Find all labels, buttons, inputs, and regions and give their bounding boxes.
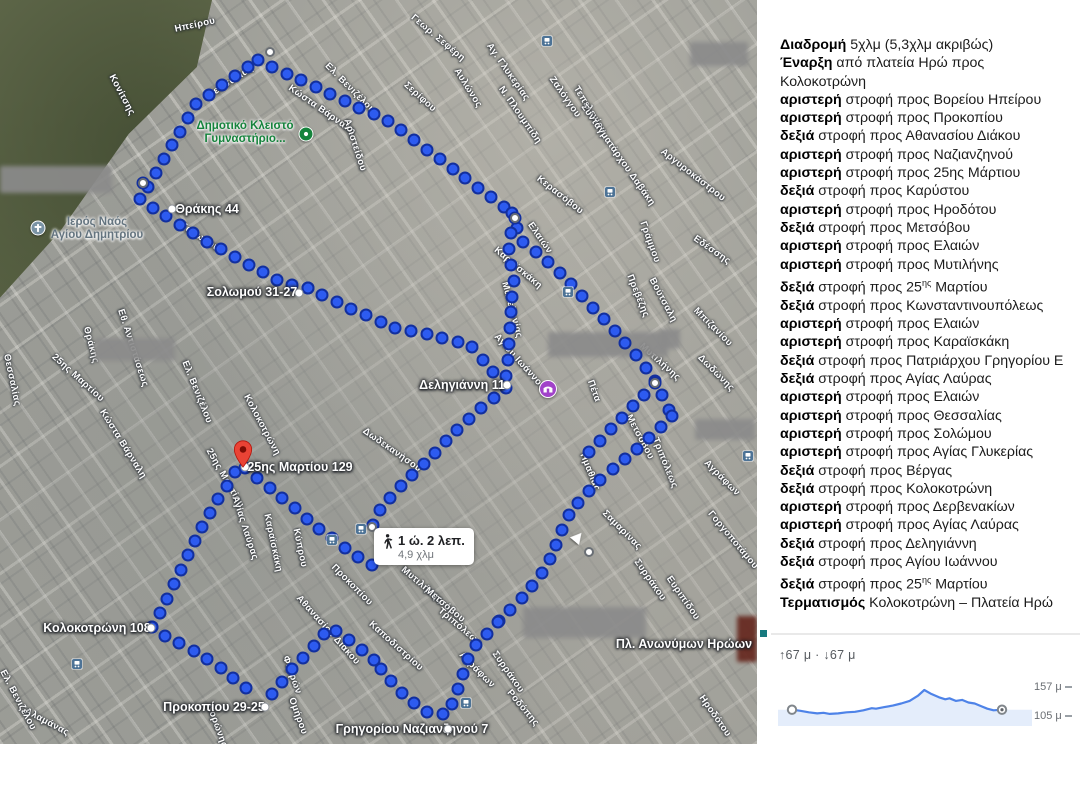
direction-step: δεξιά στροφή προς Αθανασίου Διάκου: [780, 127, 1068, 145]
route-dot: [275, 675, 288, 688]
route-dot: [405, 324, 418, 337]
route-dot: [501, 354, 514, 367]
page: ΗπείρουΘεσσαλίαςΚονίτσηςΚώστα ΒάρναληΓεω…: [0, 0, 1080, 789]
blurred-redaction: [660, 329, 680, 349]
street-name-label: Ελ. Βενιζέλου: [179, 359, 214, 425]
route-dot: [638, 388, 651, 401]
route-dot: [515, 592, 528, 605]
blurred-redaction: [548, 332, 668, 357]
street-name-label: Δωδώνης: [695, 352, 736, 393]
transit-stop-icon[interactable]: [743, 451, 754, 462]
street-name-label: Ροδόπης: [505, 688, 542, 729]
route-dot: [451, 423, 464, 436]
route-waypoint-dot: [650, 378, 660, 388]
street-name-label: Αργυροκάστρου: [658, 146, 727, 203]
route-dot: [288, 502, 301, 515]
route-dot: [345, 302, 358, 315]
sports-complex-marker-icon[interactable]: [299, 127, 314, 142]
route-dot: [239, 681, 252, 694]
route-dot: [463, 412, 476, 425]
route-dot: [359, 309, 372, 322]
route-dot: [406, 468, 419, 481]
direction-step: αριστερή στροφή προς Καραϊσκάκη: [780, 333, 1068, 351]
route-dot: [373, 504, 386, 517]
street-name-label: Συνταγματάρχου Δαβάκη: [579, 102, 658, 208]
route-dot: [502, 338, 515, 351]
map-address-label[interactable]: Προκοπίου 29-25: [163, 700, 265, 714]
route-dot: [187, 227, 200, 240]
direction-step: αριστερή στροφή προς Ελαιών: [780, 237, 1068, 255]
route-dot: [529, 246, 542, 259]
route-dot: [329, 624, 342, 637]
route-dot: [318, 627, 331, 640]
route-dot: [203, 88, 216, 101]
route-dot: [338, 94, 351, 107]
route-dot: [542, 256, 555, 269]
direction-step: αριστερή στροφή προς 25ης Μάρτιου: [780, 164, 1068, 182]
route-dot: [229, 70, 242, 83]
route-dot: [374, 315, 387, 328]
route-dot: [167, 578, 180, 591]
map-address-label[interactable]: Θράκης 44: [175, 202, 239, 216]
transit-stop-icon[interactable]: [356, 524, 367, 535]
red-map-pin[interactable]: [233, 440, 253, 468]
route-dot: [280, 67, 293, 80]
route-dot: [485, 191, 498, 204]
route-dot: [408, 697, 421, 710]
route-dot: [190, 97, 203, 110]
street-name-label: Εδέσσης: [691, 233, 732, 267]
route-dot: [324, 88, 337, 101]
route-dot: [343, 633, 356, 646]
direction-step: δεξιά στροφή προς Αγίου Ιωάννου: [780, 553, 1068, 571]
route-dot: [134, 192, 147, 205]
direction-step: δεξιά στροφή προς Μετσόβου: [780, 219, 1068, 237]
route-dot: [536, 567, 549, 580]
transit-stop-icon[interactable]: [72, 659, 83, 670]
walk-time-label: 1 ώ. 2 λεπ.: [398, 533, 465, 548]
route-dot: [330, 295, 343, 308]
address-point-dot: [444, 725, 453, 734]
street-name-label: Καραϊσκάκη: [261, 513, 284, 573]
route-dot: [187, 644, 200, 657]
route-dot: [556, 524, 569, 537]
route-dot: [201, 653, 214, 666]
direction-step: αριστερή στροφή προς Δερβενακίων: [780, 498, 1068, 516]
blurred-redaction: [0, 166, 112, 193]
route-dot: [286, 663, 299, 676]
route-dot: [295, 74, 308, 87]
route-dot: [266, 688, 279, 701]
street-name-label: Γράμμου: [637, 220, 662, 264]
route-dot: [639, 361, 652, 374]
place-of-worship-marker-icon[interactable]: [539, 380, 557, 398]
blurred-redaction: [695, 419, 755, 440]
route-dot: [395, 687, 408, 700]
route-dot: [382, 115, 395, 128]
route-dot: [266, 60, 279, 73]
route-dot: [503, 322, 516, 335]
route-waypoint-dot: [584, 547, 594, 557]
direction-step: δεξιά στροφή προς Αγίας Λαύρας: [780, 370, 1068, 388]
blurred-redaction: [523, 607, 646, 638]
route-dot: [616, 411, 629, 424]
direction-step: αριστερή στροφή προς Ελαιών: [780, 315, 1068, 333]
route-dot: [339, 541, 352, 554]
elevation-chart: [778, 676, 1032, 733]
street-name-label: Γοργοποτάμου: [705, 509, 757, 572]
route-dot: [188, 535, 201, 548]
map-address-label[interactable]: Σολωμού 31-27: [207, 285, 298, 299]
route-dot: [481, 627, 494, 640]
direction-step: δεξιά στροφή προς Δεληγιάννη: [780, 535, 1068, 553]
route-dot: [173, 637, 186, 650]
blurred-redaction: [95, 338, 175, 361]
separator-accent-square: [760, 630, 767, 637]
route-dot: [383, 491, 396, 504]
route-dot: [507, 274, 520, 287]
street-name-label: Αυλώνος: [452, 66, 485, 110]
route-dot: [394, 480, 407, 493]
route-dot: [227, 671, 240, 684]
address-point-dot: [295, 289, 304, 298]
route-dot: [256, 266, 269, 279]
street-name-label: Πέτα: [585, 379, 603, 404]
route-dot: [655, 389, 668, 402]
blurred-redaction: [690, 42, 748, 66]
route-dot: [417, 457, 430, 470]
direction-step-continuation: Κολοκοτρώνη: [780, 73, 1068, 91]
direction-step: αριστερή στροφή προς Ναζιανζηνού: [780, 146, 1068, 164]
route-dot: [629, 349, 642, 362]
address-point-dot: [168, 205, 177, 214]
direction-step: δεξιά στροφή προς Βέργας: [780, 462, 1068, 480]
route-start-chevron: [570, 529, 586, 545]
route-dot: [451, 335, 464, 348]
route-dot: [554, 266, 567, 279]
direction-step: Έναρξη από πλατεία Ηρώ προς: [780, 54, 1068, 72]
street-name-label: Κώστα Βάρναλη: [97, 407, 149, 480]
street-name-label: Θεσσαλίας: [1, 353, 23, 407]
route-dot: [408, 134, 421, 147]
street-name-label: Σερίφου: [402, 80, 439, 115]
route-dot: [631, 443, 644, 456]
street-name-label: Βούτσαλη: [647, 276, 680, 324]
map-address-label[interactable]: Γρηγορίου Ναζιανζηνού 7: [336, 722, 489, 736]
route-dot: [517, 236, 530, 249]
route-dot: [368, 654, 381, 667]
street-name-label: Τριπόλεως: [650, 436, 680, 490]
route-dot: [389, 322, 402, 335]
direction-step: αριστερή στροφή προς Αγίας Λαύρας: [780, 516, 1068, 534]
address-point-dot: [503, 381, 512, 390]
route-dot: [433, 153, 446, 166]
direction-step: Διαδρομή 5χλμ (5,3χλμ ακριβώς): [780, 36, 1068, 54]
direction-step: δεξιά στροφή προς Καρύστου: [780, 182, 1068, 200]
route-dot: [466, 341, 479, 354]
route-dot: [608, 325, 621, 338]
route-dot: [161, 592, 174, 605]
map-address-label[interactable]: Κολοκοτρώνη 108: [43, 621, 150, 635]
route-dot: [572, 496, 585, 509]
route-dot: [618, 453, 631, 466]
route-dot: [242, 259, 255, 272]
direction-step: αριστερή στροφή προς Σολώμου: [780, 425, 1068, 443]
route-dot: [212, 493, 225, 506]
route-dot: [440, 435, 453, 448]
route-dot: [582, 484, 595, 497]
route-dot: [352, 550, 365, 563]
walking-person-icon: [382, 534, 393, 549]
separator-line: [771, 633, 1080, 635]
direction-step: αριστερή στροφή προς Αγίας Γλυκερίας: [780, 443, 1068, 461]
route-dot: [436, 331, 449, 344]
street-name-label: Κερασόβου: [535, 173, 586, 216]
direction-step: δεξιά στροφή προς Κολοκοτρώνη: [780, 480, 1068, 498]
route-dot: [421, 143, 434, 156]
route-dot: [505, 258, 518, 271]
route-dot: [181, 549, 194, 562]
route-dot: [153, 606, 166, 619]
route-dot: [395, 124, 408, 137]
street-name-label: Ελ. Βενιζέλου: [0, 668, 38, 732]
route-dot: [204, 506, 217, 519]
route-dot: [309, 81, 322, 94]
route-dot: [472, 181, 485, 194]
route-dot: [594, 473, 607, 486]
route-dot: [576, 289, 589, 302]
route-dot: [296, 651, 309, 664]
route-dot: [385, 675, 398, 688]
direction-step: αριστερή στροφή προς Ελαιών: [780, 388, 1068, 406]
route-dot: [214, 243, 227, 256]
route-dot: [220, 479, 233, 492]
street-name-label: Ηροδότου: [697, 693, 734, 739]
route-dot: [158, 153, 171, 166]
walking-time-bubble[interactable]: 1 ώ. 2 λεπ. 4,9 χλμ: [374, 528, 474, 565]
transit-stop-icon[interactable]: [461, 698, 472, 709]
route-dot: [502, 243, 515, 256]
transit-stop-icon[interactable]: [327, 535, 338, 546]
street-name-label: Αγράφων: [702, 458, 743, 499]
route-dot: [504, 603, 517, 616]
street-name-label: Ομήρου: [286, 696, 310, 736]
route-dot: [316, 288, 329, 301]
route-dot: [504, 227, 517, 240]
route-dot: [174, 125, 187, 138]
transit-stop-icon[interactable]: [563, 287, 574, 298]
route-dot: [420, 327, 433, 340]
map-address-label[interactable]: Δεληγιάννη 11: [419, 378, 505, 392]
route-dot: [476, 353, 489, 366]
direction-step: Τερματισμός Κολοκοτρώνη – Πλατεία Ηρώ: [780, 594, 1068, 612]
map-address-label[interactable]: Πλ. Ανωνύμων Ηρώων: [616, 637, 752, 651]
sports-complex-label[interactable]: Δημοτικό Κλειστό Γυμναστήριο...: [197, 120, 294, 146]
transit-stop-icon[interactable]: [542, 36, 553, 47]
route-dot: [654, 421, 667, 434]
route-dot: [457, 667, 470, 680]
route-waypoint-dot: [138, 178, 148, 188]
route-dot: [174, 563, 187, 576]
church-label[interactable]: Ιερός Ναός Αγίου Δημητρίου: [51, 216, 143, 242]
route-dot: [606, 463, 619, 476]
route-dot: [420, 706, 433, 719]
directions-panel: Διαδρομή 5χλμ (5,3χλμ ακριβώς)Έναρξη από…: [780, 36, 1068, 613]
route-dot: [429, 446, 442, 459]
address-point-dot: [147, 624, 156, 633]
route-dot: [461, 652, 474, 665]
route-dot: [549, 538, 562, 551]
route-dot: [506, 290, 519, 303]
route-dot: [216, 79, 229, 92]
route-dot: [367, 108, 380, 121]
route-dot: [159, 630, 172, 643]
route-dot: [627, 400, 640, 413]
route-dot: [486, 365, 499, 378]
route-dot: [195, 520, 208, 533]
route-dot: [146, 201, 159, 214]
church-marker-icon[interactable]: [31, 221, 46, 236]
route-dot: [263, 481, 276, 494]
street-name-label: Δωδεκανήσου: [360, 426, 423, 475]
direction-step: αριστερή στροφή προς Προκοπίου: [780, 109, 1068, 127]
route-dot: [619, 337, 632, 350]
route-dot: [307, 640, 320, 653]
map-address-label[interactable]: 25ης Μαρτίου 129: [247, 460, 352, 474]
route-dot: [452, 683, 465, 696]
route-dot: [459, 172, 472, 185]
route-dot: [487, 392, 500, 405]
street-name-label: Ευριπίδου: [664, 574, 702, 622]
route-dot: [166, 139, 179, 152]
route-dot: [525, 579, 538, 592]
route-dot: [597, 313, 610, 326]
route-dot: [582, 446, 595, 459]
route-dot: [173, 218, 186, 231]
route-dot: [593, 434, 606, 447]
route-dot: [436, 707, 449, 720]
street-name-label: Συρράκου: [490, 649, 527, 695]
route-dot: [228, 251, 241, 264]
transit-stop-icon[interactable]: [605, 187, 616, 198]
direction-step: αριστερή στροφή προς Θεσσαλίας: [780, 407, 1068, 425]
route-dot: [446, 162, 459, 175]
street-name-label: Σαμαρίνας: [600, 508, 644, 552]
route-dot: [200, 235, 213, 248]
street-name-label: Μπιζανίου: [691, 305, 734, 348]
walk-distance-label: 4,9 χλμ: [398, 549, 465, 561]
route-dot: [182, 111, 195, 124]
route-dot: [543, 553, 556, 566]
direction-step: δεξιά στροφή προς 25ης Μαρτίου: [780, 274, 1068, 297]
route-dot: [587, 301, 600, 314]
street-name-label: Γεωρ. Σεφέρη: [409, 12, 468, 64]
elevation-min-tick: 105 μ: [1034, 710, 1072, 722]
direction-step: αριστερή στροφή προς Βορείου Ηπείρου: [780, 91, 1068, 109]
street-name-label: Κύπρου: [291, 528, 310, 569]
elevation-ascent-descent: ↑67 μ · ↓67 μ: [779, 648, 856, 662]
route-dot: [214, 661, 227, 674]
route-dot: [666, 410, 679, 423]
route-dot: [470, 639, 483, 652]
route-dot: [492, 616, 505, 629]
route-dot: [475, 402, 488, 415]
direction-step: δεξιά στροφή προς Κωνσταντινουπόλεως: [780, 297, 1068, 315]
direction-step: αριστερή στροφή προς Μυτιλήνης: [780, 256, 1068, 274]
route-waypoint-dot: [265, 47, 275, 57]
elevation-max-tick: 157 μ: [1034, 681, 1072, 693]
route-dot: [300, 512, 313, 525]
route-dot: [313, 522, 326, 535]
route-waypoint-dot: [510, 213, 520, 223]
route-dot: [504, 306, 517, 319]
direction-step: δεξιά στροφή προς Πατριάρχου Γρηγορίου Ε: [780, 352, 1068, 370]
route-dot: [355, 643, 368, 656]
route-dot: [276, 492, 289, 505]
route-dot: [643, 432, 656, 445]
route-dot: [150, 167, 163, 180]
address-point-dot: [261, 703, 270, 712]
route-dot: [562, 509, 575, 522]
route-dot: [604, 423, 617, 436]
route-dot: [353, 101, 366, 114]
direction-step: αριστερή στροφή προς Ηροδότου: [780, 201, 1068, 219]
direction-step: δεξιά στροφή προς 25ης Μαρτίου: [780, 571, 1068, 594]
satellite-map[interactable]: ΗπείρουΘεσσαλίαςΚονίτσηςΚώστα ΒάρναληΓεω…: [0, 0, 757, 744]
route-dot: [252, 54, 265, 67]
